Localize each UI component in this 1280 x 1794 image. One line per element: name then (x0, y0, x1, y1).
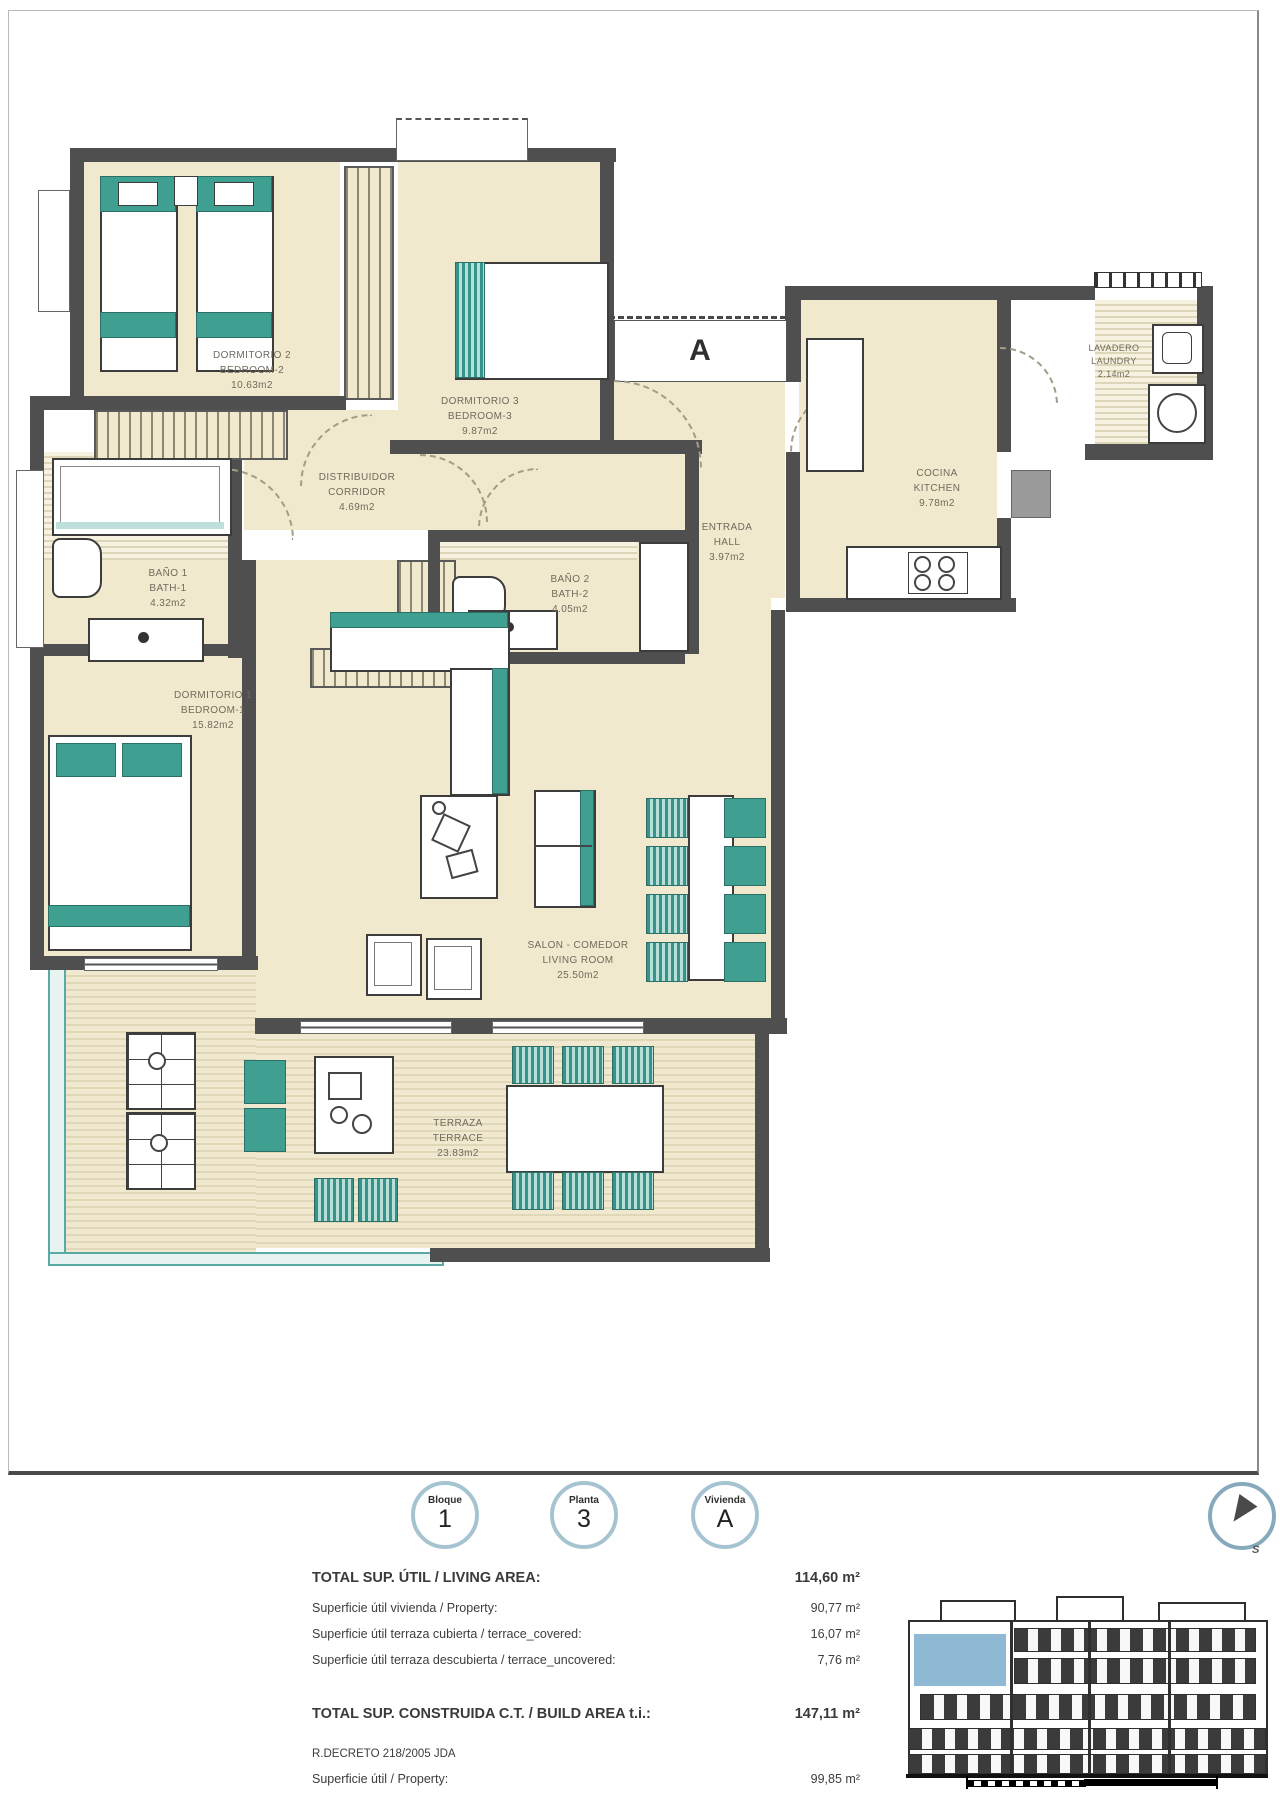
wall (786, 598, 1016, 612)
stove-burner (914, 556, 931, 573)
closet-bedroom-divider (344, 166, 394, 400)
coffee-table-decor-circle (432, 801, 446, 815)
bathtub-inner (60, 466, 220, 524)
room-name-es: DORMITORIO 1 (174, 688, 252, 703)
room-area: 9.87m2 (441, 424, 519, 439)
room-area: 3.97m2 (702, 550, 753, 565)
badge-value: A (695, 1506, 755, 1532)
area-value: 90,77 m² (811, 1601, 860, 1615)
lounge-decor (150, 1134, 168, 1152)
kitchen-pantry-column (806, 338, 864, 472)
room-area: 4.05m2 (550, 602, 589, 617)
area-row-terrace-covered: Superficie útil terraza cubierta / terra… (312, 1627, 860, 1641)
room-label-laundry: LAVADERO LAUNDRY 2.14m2 (1089, 342, 1140, 381)
lounge-set (126, 1032, 196, 1110)
terrace-coffee-table (314, 1056, 394, 1154)
window-bath1 (16, 470, 44, 648)
window-bedroom2 (38, 190, 70, 312)
badge-vivienda: Vivienda A (691, 1481, 759, 1549)
area-value: 99,85 m² (811, 1772, 860, 1786)
wall (70, 148, 402, 162)
wall (785, 286, 801, 382)
room-name-es: DORMITORIO 2 (213, 348, 291, 363)
lounge-decor (148, 1052, 166, 1070)
room-name-es: DISTRIBUIDOR (319, 470, 395, 485)
terrace-chair (562, 1172, 604, 1210)
water-heater (1011, 470, 1051, 518)
window-laundry (1094, 272, 1202, 288)
terrace-chair (562, 1046, 604, 1084)
terrace-stool (244, 1060, 286, 1104)
wall (755, 1034, 769, 1260)
terrace-dining-table (506, 1085, 664, 1173)
room-name-es: SALON - COMEDOR (527, 938, 628, 953)
bed-bedroom3-headboard (455, 262, 485, 378)
room-name-en: KITCHEN (914, 481, 961, 496)
wall (786, 452, 800, 598)
terrace-stool (314, 1178, 354, 1222)
pool-edge-left (48, 962, 66, 1266)
decree-text: R.DECRETO 218/2005 JDA (312, 1748, 456, 1760)
area-label: Superficie útil terraza descubierta / te… (312, 1653, 616, 1667)
terrace-door-bedroom1 (84, 958, 218, 971)
washing-machine-drum (1157, 393, 1197, 433)
room-name-es: COCINA (914, 466, 961, 481)
bed-twin-2-pillow (214, 182, 254, 206)
stove-burner (938, 556, 955, 573)
area-label: Superficie útil / Property: (312, 1772, 448, 1786)
scale-bar-end (966, 1776, 968, 1789)
elevation-window-band (1014, 1658, 1256, 1684)
terrace-table-decor-circle (352, 1114, 372, 1134)
room-name-en: TERRACE (433, 1131, 484, 1146)
area-label: Superficie útil vivienda / Property: (312, 1601, 498, 1615)
elevation-divider (1010, 1620, 1013, 1774)
area-row-property: Superficie útil vivienda / Property: 90,… (312, 1601, 860, 1615)
dining-chair (724, 894, 766, 934)
badge-bloque: Bloque 1 (411, 1481, 479, 1549)
room-area: 2.14m2 (1089, 368, 1140, 381)
stove-burner (938, 574, 955, 591)
room-label-bedroom3: DORMITORIO 3 BEDROOM-3 9.87m2 (441, 394, 519, 439)
room-label-bedroom1: DORMITORIO 1 BEDROOM-1 15.82m2 (174, 688, 252, 733)
area-row-decree-property: Superficie útil / Property: 99,85 m² (312, 1772, 860, 1786)
wall (799, 286, 1095, 300)
bed-twin-1-runner (100, 312, 176, 338)
terrace-chair (512, 1046, 554, 1084)
badge-planta: Planta 3 (550, 1481, 618, 1549)
area-value: 16,07 m² (811, 1627, 860, 1641)
room-label-living: SALON - COMEDOR LIVING ROOM 25.50m2 (527, 938, 628, 983)
dining-chair (646, 942, 688, 982)
elevation-highlighted-unit (914, 1634, 1006, 1686)
wall (1085, 444, 1213, 460)
scale-bar (966, 1776, 1218, 1790)
area-label: TOTAL SUP. ÚTIL / LIVING AREA: (312, 1570, 541, 1586)
shower-bath2 (639, 542, 689, 652)
terrace-slider-left (300, 1021, 452, 1034)
room-name-en: BEDROOM-1 (174, 703, 252, 718)
room-label-terrace: TERRAZA TERRACE 23.83m2 (433, 1116, 484, 1161)
room-label-bath1: BAÑO 1 BATH-1 4.32m2 (148, 566, 187, 611)
room-name-en: BEDROOM-2 (213, 363, 291, 378)
vanity-bath1-basin (138, 632, 149, 643)
wardrobe-bedroom2 (94, 410, 288, 460)
room-area: 4.32m2 (148, 596, 187, 611)
bed-bedroom1-pillow (122, 743, 182, 777)
room-name-es: BAÑO 1 (148, 566, 187, 581)
terrace-table-decor-circle (330, 1106, 348, 1124)
dining-chair (724, 798, 766, 838)
wall (84, 396, 346, 410)
room-label-hall: ENTRADA HALL 3.97m2 (702, 520, 753, 565)
room-label-kitchen: COCINA KITCHEN 9.78m2 (914, 466, 961, 511)
room-name-es: TERRAZA (433, 1116, 484, 1131)
room-area: 15.82m2 (174, 718, 252, 733)
terrace-slider-right (492, 1021, 644, 1034)
room-area: 4.69m2 (319, 500, 395, 515)
room-name-en: BATH-1 (148, 581, 187, 596)
wall (440, 530, 685, 542)
sideboard-divider (534, 845, 592, 847)
area-row-total-util: TOTAL SUP. ÚTIL / LIVING AREA: 114,60 m² (312, 1570, 860, 1586)
room-name-en: LAUNDRY (1089, 355, 1140, 368)
elevation-window-band (908, 1754, 1266, 1774)
room-area: 9.78m2 (914, 496, 961, 511)
terrace-chair (512, 1172, 554, 1210)
badge-value: 3 (554, 1506, 614, 1532)
sofa-vertical-back (492, 668, 508, 794)
area-label: TOTAL SUP. CONSTRUIDA C.T. / BUILD AREA … (312, 1706, 651, 1722)
room-area: 10.63m2 (213, 378, 291, 393)
room-label-bath2: BAÑO 2 BATH-2 4.05m2 (550, 572, 589, 617)
decree-note: R.DECRETO 218/2005 JDA (312, 1748, 860, 1760)
elevation-divider (1168, 1620, 1171, 1774)
compass-icon (1208, 1482, 1276, 1550)
bed-bedroom1-runner (48, 905, 190, 927)
scale-bar-ticks (966, 1780, 1086, 1787)
sideboard-edge (580, 790, 594, 906)
dining-chair (646, 846, 688, 886)
wall (430, 1248, 770, 1262)
bed-bedroom1-pillow (56, 743, 116, 777)
room-name-es: DORMITORIO 3 (441, 394, 519, 409)
wall (771, 610, 785, 1034)
dining-chair (724, 846, 766, 886)
room-name-es: LAVADERO (1089, 342, 1140, 355)
elevation-window-band (908, 1728, 1266, 1750)
room-name-en: LIVING ROOM (527, 953, 628, 968)
compass-arrow-icon (1225, 1494, 1258, 1528)
toilet-bath1 (52, 538, 102, 598)
sofa-horizontal-back (330, 612, 508, 628)
area-row-terrace-uncovered: Superficie útil terraza descubierta / te… (312, 1653, 860, 1667)
pool-edge-bottom (48, 1252, 444, 1266)
armchair-cushion (374, 942, 412, 986)
wall (70, 148, 84, 410)
wall (242, 560, 256, 970)
terrace-table-decor (328, 1072, 362, 1100)
room-label-bedroom2: DORMITORIO 2 BEDROOM-2 10.63m2 (213, 348, 291, 393)
armchair-cushion (434, 946, 472, 990)
area-value: 7,76 m² (818, 1653, 860, 1667)
terrace-chair (612, 1172, 654, 1210)
room-area: 23.83m2 (433, 1146, 484, 1161)
compass-south-letter: S (1252, 1544, 1259, 1556)
room-area: 25.50m2 (527, 968, 628, 983)
scale-bar-solid (1084, 1779, 1216, 1786)
terrace-stool (358, 1178, 398, 1222)
elevation-window-band (1014, 1628, 1256, 1652)
bathtub-waterline (56, 522, 224, 529)
area-value: 114,60 m² (795, 1570, 860, 1586)
building-elevation (906, 1594, 1268, 1784)
scale-bar-end (1216, 1776, 1218, 1789)
nightstand (174, 176, 198, 206)
terrace-chair (612, 1046, 654, 1084)
elevation-divider (1088, 1620, 1091, 1774)
area-value: 147,11 m² (795, 1706, 860, 1722)
dining-chair (646, 894, 688, 934)
terrace-stool (244, 1108, 286, 1152)
room-name-en: CORRIDOR (319, 485, 395, 500)
dining-chair (724, 942, 766, 982)
dining-chair (646, 798, 688, 838)
room-name-en: HALL (702, 535, 753, 550)
window-bedroom3 (396, 118, 528, 161)
area-row-build-area: TOTAL SUP. CONSTRUIDA C.T. / BUILD AREA … (312, 1706, 860, 1722)
floorplan-page: A DORMITORIO 2 BEDROOM-2 10.63m2 DORMITO… (0, 0, 1280, 1794)
laundry-sink-basin (1162, 332, 1192, 364)
room-name-en: BEDROOM-3 (441, 409, 519, 424)
bed-twin-1-pillow (118, 182, 158, 206)
room-name-es: BAÑO 2 (550, 572, 589, 587)
entrance-letter: A (689, 334, 711, 368)
badge-value: 1 (415, 1506, 475, 1532)
bed-twin-2-runner (196, 312, 272, 338)
stove-burner (914, 574, 931, 591)
room-name-en: BATH-2 (550, 587, 589, 602)
entrance-dashed-line (600, 316, 786, 319)
area-label: Superficie útil terraza cubierta / terra… (312, 1627, 582, 1641)
room-name-es: ENTRADA (702, 520, 753, 535)
room-label-corridor: DISTRIBUIDOR CORRIDOR 4.69m2 (319, 470, 395, 515)
